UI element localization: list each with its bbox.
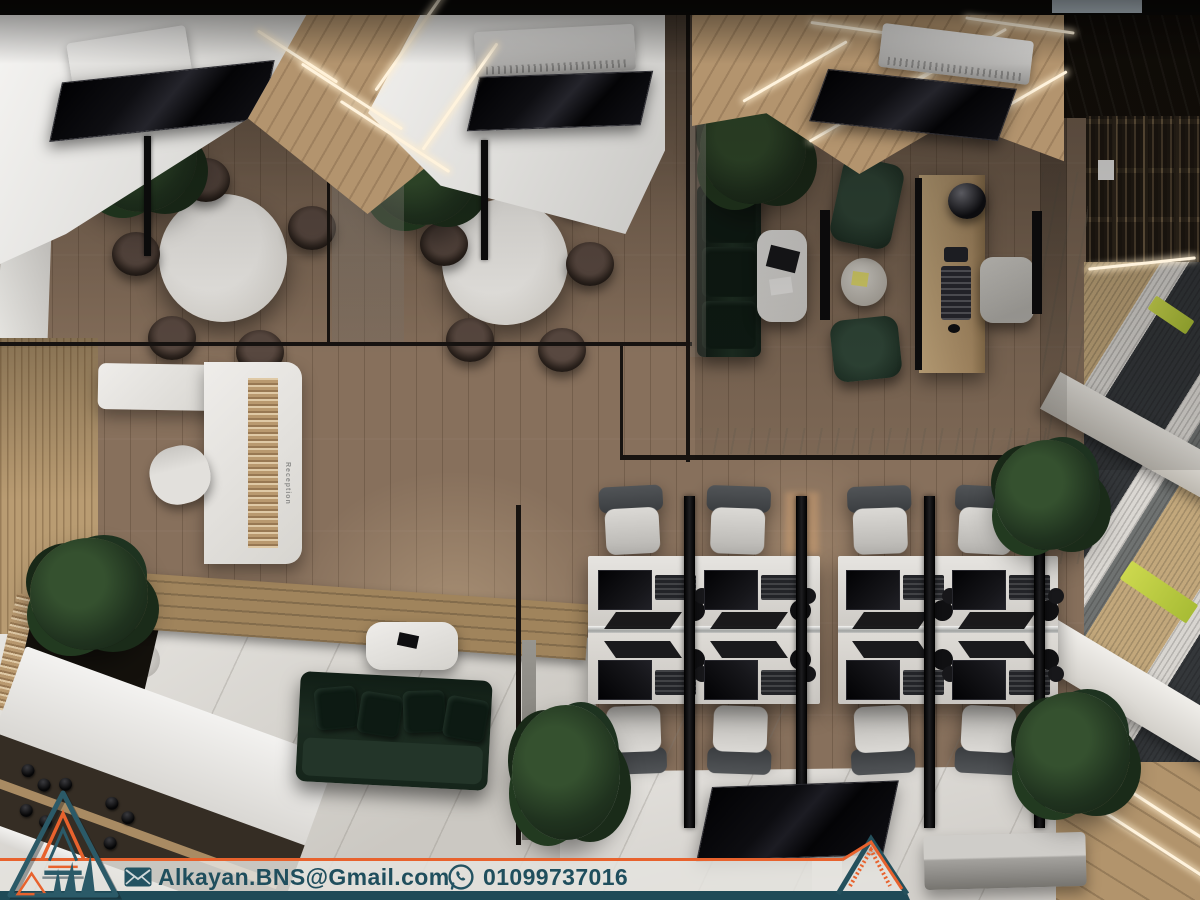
footer-email: Alkayan.BNS@Gmail.com	[158, 864, 450, 890]
monitor	[846, 660, 900, 700]
logo-baseline	[35, 893, 94, 896]
papers	[769, 277, 793, 296]
meeting-chair	[566, 242, 614, 286]
workstation	[704, 638, 808, 704]
window-sky-sliver	[1052, 0, 1142, 13]
potted-plant	[995, 440, 1100, 550]
floor-lamp	[1032, 211, 1042, 314]
chair-seat	[853, 705, 909, 754]
glass-wall	[620, 455, 1062, 460]
office-chair	[705, 485, 771, 559]
sofa-cushion	[702, 301, 756, 349]
logo-shadow	[13, 796, 118, 897]
monitor-shadow	[604, 612, 682, 629]
potted-plant	[1015, 692, 1130, 814]
logo-tagline-bar	[48, 866, 77, 868]
logo-bar-light	[42, 876, 83, 878]
office-chair	[848, 700, 916, 775]
chair-seat	[713, 705, 769, 753]
sofa-cushion	[702, 247, 756, 297]
top-wall-edge	[0, 0, 1200, 15]
sofa-pillow	[441, 694, 490, 743]
bookshelf	[1086, 116, 1200, 266]
monitor	[704, 570, 758, 610]
shelf-book	[1098, 160, 1114, 180]
partition-post	[924, 496, 935, 828]
pendant-light	[481, 140, 488, 260]
chair-seat	[960, 705, 1016, 754]
footer-chevron	[812, 828, 922, 900]
whatsapp-icon	[447, 863, 475, 891]
meeting-chair	[446, 318, 494, 362]
chair-seat	[710, 507, 766, 555]
sofa-pillow	[356, 690, 404, 738]
potted-plant	[30, 538, 148, 650]
monitor-shadow	[710, 612, 788, 629]
notepad	[851, 271, 869, 287]
sofa-pillow	[313, 685, 359, 731]
partition-post	[796, 496, 807, 828]
workstation	[704, 566, 808, 632]
glass-wall	[620, 345, 623, 457]
monitor	[704, 660, 758, 700]
office-chair	[954, 700, 1022, 775]
sofa-pillow	[402, 690, 445, 733]
lounge-sofa	[295, 671, 492, 791]
desk-edge	[915, 178, 922, 370]
monitor-shadow	[958, 641, 1036, 658]
reception-desk: Reception	[204, 362, 302, 564]
meeting-chair	[112, 232, 160, 276]
alkayan-triangle-logo	[4, 788, 122, 900]
reception-desk-label: Reception	[284, 462, 291, 505]
monitor-shadow	[710, 641, 788, 658]
executive-chair	[829, 315, 903, 384]
decor-sphere	[948, 183, 986, 219]
monitor	[598, 570, 652, 610]
office-sofa	[697, 185, 761, 357]
glass-reflection	[690, 115, 706, 357]
console-unit	[923, 832, 1086, 890]
envelope-icon	[124, 867, 152, 887]
office-chair	[847, 485, 913, 559]
ac-unit	[474, 24, 636, 78]
mouse	[948, 324, 960, 333]
chair-seat	[604, 507, 660, 556]
meeting-table	[159, 194, 287, 322]
monitor	[952, 570, 1006, 610]
pendant-light	[144, 136, 151, 256]
monitor	[598, 660, 652, 700]
office-interior-render: Reception	[0, 0, 1200, 900]
meeting-chair	[538, 328, 586, 372]
meeting-chair	[148, 316, 196, 360]
footer-bottom-strip	[0, 891, 844, 900]
chevron-strip-fill	[812, 891, 910, 900]
chair-seat	[853, 507, 909, 555]
monitor-shadow	[604, 641, 682, 658]
typewriter	[941, 266, 971, 320]
desk-lamp	[932, 649, 953, 670]
office-chair	[707, 701, 773, 775]
logo-spike	[81, 855, 95, 894]
bottle	[20, 762, 37, 779]
partition-post	[684, 496, 695, 828]
desk-wood-slats	[248, 378, 278, 548]
dark-wood-ceiling	[1058, 0, 1200, 118]
meeting-chair	[420, 222, 468, 266]
logo-bar	[44, 871, 81, 875]
monitor	[846, 570, 900, 610]
monitor-shadow	[852, 612, 930, 629]
meeting-table	[442, 199, 568, 325]
footer-phone: 01099737016	[483, 864, 628, 890]
desk-side-panel	[820, 210, 830, 320]
logo-outer-triangle	[10, 793, 116, 895]
wall-tv	[467, 71, 653, 132]
desk-item	[944, 247, 968, 262]
desk-lamp	[932, 600, 953, 621]
office-chair	[598, 484, 666, 559]
glass-wall	[0, 342, 692, 346]
monitor	[952, 660, 1006, 700]
guest-chair	[980, 257, 1034, 323]
potted-plant	[512, 705, 620, 840]
monitor-shadow	[958, 612, 1036, 629]
monitor-shadow	[852, 641, 930, 658]
coffee-table	[757, 230, 807, 322]
reception-desk-arm	[98, 363, 221, 411]
marble-threshold	[700, 428, 1048, 454]
